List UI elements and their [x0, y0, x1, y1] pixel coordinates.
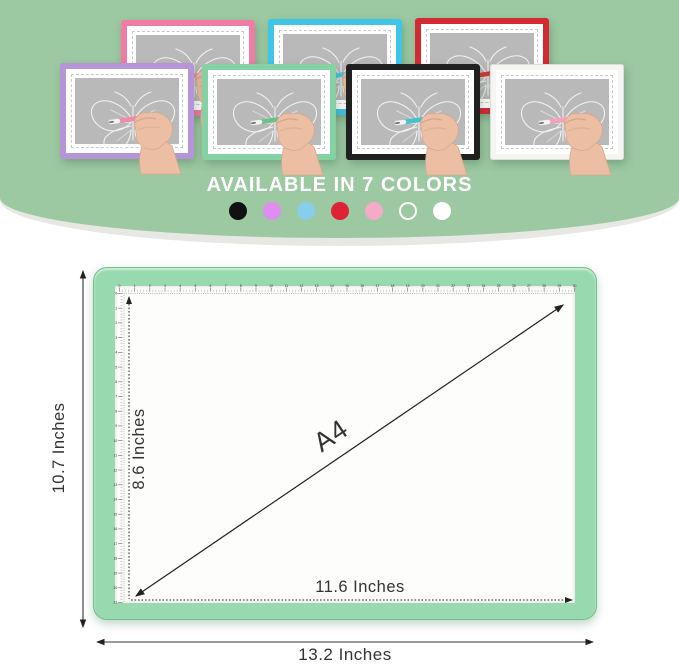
- color-swatch-pink: [365, 202, 383, 220]
- tablet-screen: [505, 79, 609, 145]
- light-pad-tablet-green: [202, 64, 336, 160]
- tablet-frame: [60, 63, 194, 159]
- color-swatch-white: [433, 202, 451, 220]
- hand-with-pen-icon: [252, 114, 323, 175]
- light-pad-tablet-purple: [60, 63, 194, 159]
- hand-with-pen-icon: [540, 114, 611, 175]
- hand-with-pen-icon: [110, 113, 181, 174]
- outer-height-label: 10.7 Inches: [50, 403, 68, 494]
- outer-width-label: 13.2 Inches: [298, 645, 391, 664]
- tablet-frame: [490, 64, 624, 160]
- hand-with-pen-icon: [396, 114, 467, 175]
- tablet-screen: [75, 78, 179, 144]
- tablet-bezel: [208, 70, 330, 154]
- color-swatch-purple: [263, 202, 281, 220]
- color-swatch-red: [331, 202, 349, 220]
- light-pad-tablet-white: [490, 64, 624, 160]
- tablet-frame: [346, 64, 480, 160]
- tablet-bezel: [352, 70, 474, 154]
- tablet-bezel: [496, 70, 618, 154]
- tablet-bezel: [66, 69, 188, 153]
- color-swatch-white-outline: [399, 202, 417, 220]
- tablet-screen: [361, 79, 465, 145]
- color-swatch-light-blue: [297, 202, 315, 220]
- light-pad-drawing-area: [115, 286, 575, 603]
- light-pad-tablet-black: [346, 64, 480, 160]
- tablet-screen: [217, 79, 321, 145]
- tablet-frame: [202, 64, 336, 160]
- hero-title: AVAILABLE IN 7 COLORS: [0, 174, 679, 197]
- color-swatch-black: [229, 202, 247, 220]
- color-swatch-row: [0, 202, 679, 220]
